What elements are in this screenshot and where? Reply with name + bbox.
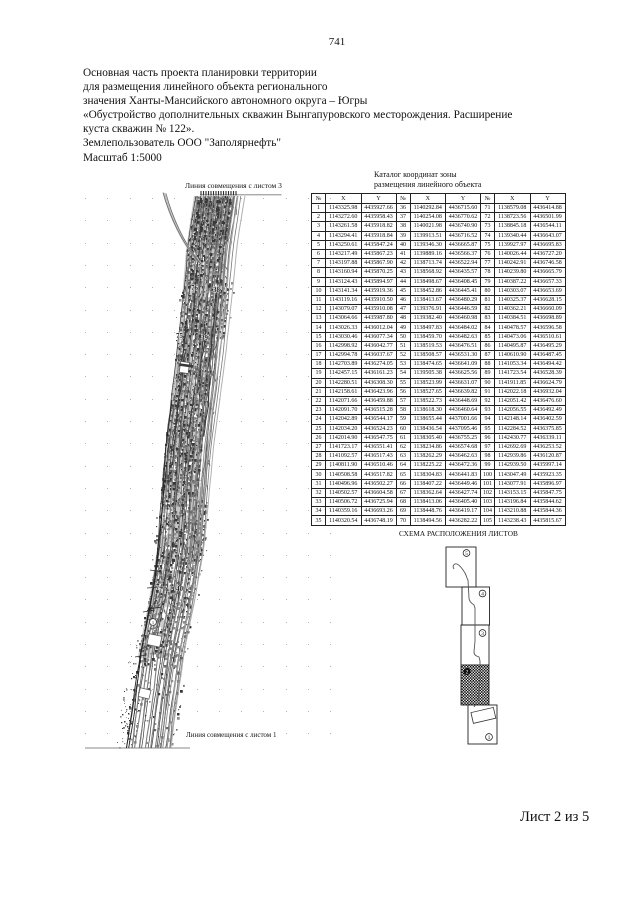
svg-text:39: 39 [201, 334, 209, 342]
svg-text:1: 1 [152, 620, 154, 625]
svg-text:4: 4 [481, 592, 484, 598]
svg-text:38: 38 [213, 286, 221, 294]
svg-text:2: 2 [466, 670, 469, 676]
svg-text:1: 1 [488, 735, 491, 741]
svg-text:74: 74 [156, 583, 164, 591]
svg-text:76: 76 [191, 284, 199, 292]
svg-text:75: 75 [176, 332, 184, 340]
svg-text:3: 3 [481, 631, 484, 637]
svg-text:5: 5 [465, 551, 468, 557]
svg-text:40: 40 [176, 585, 184, 593]
